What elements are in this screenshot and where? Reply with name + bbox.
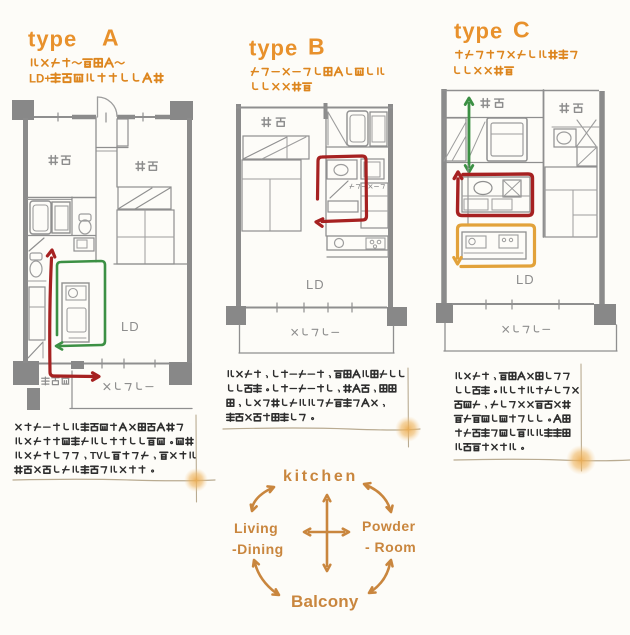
svg-text:- Room: - Room <box>365 539 416 555</box>
svg-text:LD: LD <box>306 277 325 292</box>
svg-text:type: type <box>249 36 298 61</box>
svg-text:kitchen: kitchen <box>283 468 358 485</box>
svg-text:type: type <box>28 27 77 52</box>
svg-text:Living: Living <box>234 520 278 536</box>
svg-text:LD+: LD+ <box>29 73 51 85</box>
svg-text:LD: LD <box>516 272 535 287</box>
svg-text:-Dining: -Dining <box>232 541 284 557</box>
svg-text:A: A <box>102 25 119 51</box>
svg-text:LD: LD <box>121 319 140 334</box>
svg-text:B: B <box>308 34 325 60</box>
svg-text:Balcony: Balcony <box>291 592 359 611</box>
svg-text:type: type <box>454 19 503 44</box>
svg-text:C: C <box>513 17 530 43</box>
svg-text:TV: TV <box>90 451 103 462</box>
svg-text:Powder: Powder <box>362 518 416 534</box>
